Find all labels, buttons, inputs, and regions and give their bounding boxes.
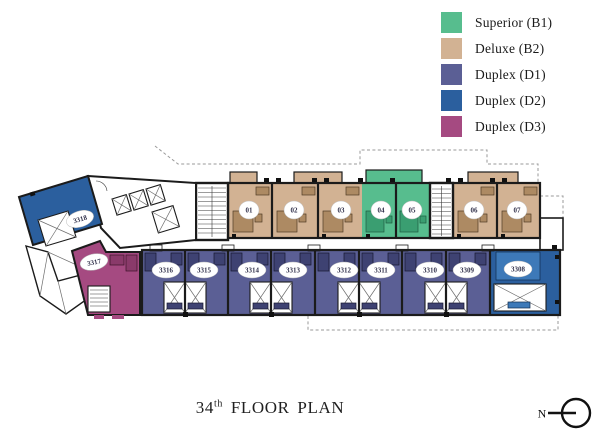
stairwell-mid xyxy=(430,183,453,238)
svg-text:01: 01 xyxy=(246,207,254,215)
svg-text:06: 06 xyxy=(471,207,479,215)
unit-3314: 3314 xyxy=(238,262,266,278)
legend-swatch-duplex-d3 xyxy=(441,116,462,137)
svg-text:3309: 3309 xyxy=(460,267,475,275)
unit-3310: 3310 xyxy=(416,262,444,278)
svg-text:07: 07 xyxy=(514,207,522,215)
legend-label: Deluxe (B2) xyxy=(475,41,544,57)
unit-03: 03 xyxy=(331,201,351,219)
svg-text:3316: 3316 xyxy=(159,267,174,275)
unit-05: 05 xyxy=(402,201,422,219)
legend-swatch-duplex-d1 xyxy=(441,64,462,85)
legend-label: Duplex (D1) xyxy=(475,67,546,83)
legend: Superior (B1) Deluxe (B2) Duplex (D1) Du… xyxy=(441,12,552,137)
unit-3315: 3315 xyxy=(190,262,218,278)
north-compass: N xyxy=(538,399,590,427)
unit-3311: 3311 xyxy=(367,262,395,278)
page-title: 34th FLOOR PLAN xyxy=(150,398,390,418)
svg-text:3315: 3315 xyxy=(197,267,212,275)
legend-item-duplex-d1: Duplex (D1) xyxy=(441,64,552,85)
svg-text:3310: 3310 xyxy=(423,267,438,275)
unit-07: 07 xyxy=(507,201,527,219)
legend-swatch-duplex-d2 xyxy=(441,90,462,111)
unit-01: 01 xyxy=(239,201,259,219)
floor-plan-page: 01 02 03 04 05 06 07 3316 3315 3314 3313… xyxy=(0,0,600,437)
legend-item-duplex-d3: Duplex (D3) xyxy=(441,116,552,137)
title-ordinal-suffix: th xyxy=(214,398,223,409)
legend-label: Duplex (D2) xyxy=(475,93,546,109)
unit-04: 04 xyxy=(371,201,391,219)
unit-06: 06 xyxy=(464,201,484,219)
legend-swatch-deluxe xyxy=(441,38,462,59)
stairwell-left xyxy=(196,183,228,240)
svg-text:05: 05 xyxy=(409,207,417,215)
unit-3313: 3313 xyxy=(279,262,307,278)
bottom-row xyxy=(142,245,560,317)
svg-text:3311: 3311 xyxy=(374,267,388,275)
north-label: N xyxy=(538,407,547,421)
legend-label: Superior (B1) xyxy=(475,15,552,31)
legend-item-duplex-d2: Duplex (D2) xyxy=(441,90,552,111)
svg-text:3313: 3313 xyxy=(286,267,301,275)
legend-swatch-superior xyxy=(441,12,462,33)
title-text: FLOOR PLAN xyxy=(231,398,344,417)
unit-3312: 3312 xyxy=(330,262,358,278)
svg-text:02: 02 xyxy=(291,207,299,215)
legend-item-superior-b1: Superior (B1) xyxy=(441,12,552,33)
legend-label: Duplex (D3) xyxy=(475,119,546,135)
svg-text:3312: 3312 xyxy=(337,267,352,275)
svg-text:3314: 3314 xyxy=(245,267,260,275)
unit-02: 02 xyxy=(284,201,304,219)
svg-text:03: 03 xyxy=(338,207,346,215)
unit-3309: 3309 xyxy=(453,262,481,278)
svg-text:04: 04 xyxy=(378,207,386,215)
unit-3316: 3316 xyxy=(152,262,180,278)
title-floor-number: 34 xyxy=(196,398,214,417)
svg-text:3308: 3308 xyxy=(511,266,526,274)
unit-3308: 3308 xyxy=(504,261,532,277)
legend-item-deluxe-b2: Deluxe (B2) xyxy=(441,38,552,59)
